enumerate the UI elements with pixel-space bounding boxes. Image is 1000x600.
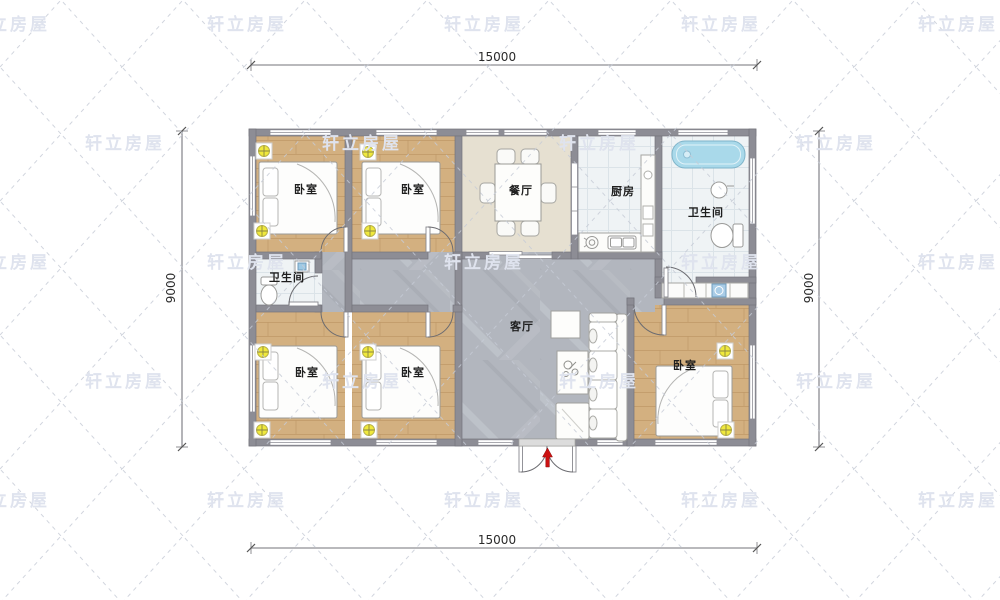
floor-plan-drawing <box>0 0 1000 600</box>
lattice-overlay <box>0 0 1000 600</box>
floor-plan-canvas: 轩立房屋轩立房屋轩立房屋轩立房屋轩立房屋轩立房屋轩立房屋轩立房屋轩立房屋轩立房屋… <box>0 0 1000 600</box>
